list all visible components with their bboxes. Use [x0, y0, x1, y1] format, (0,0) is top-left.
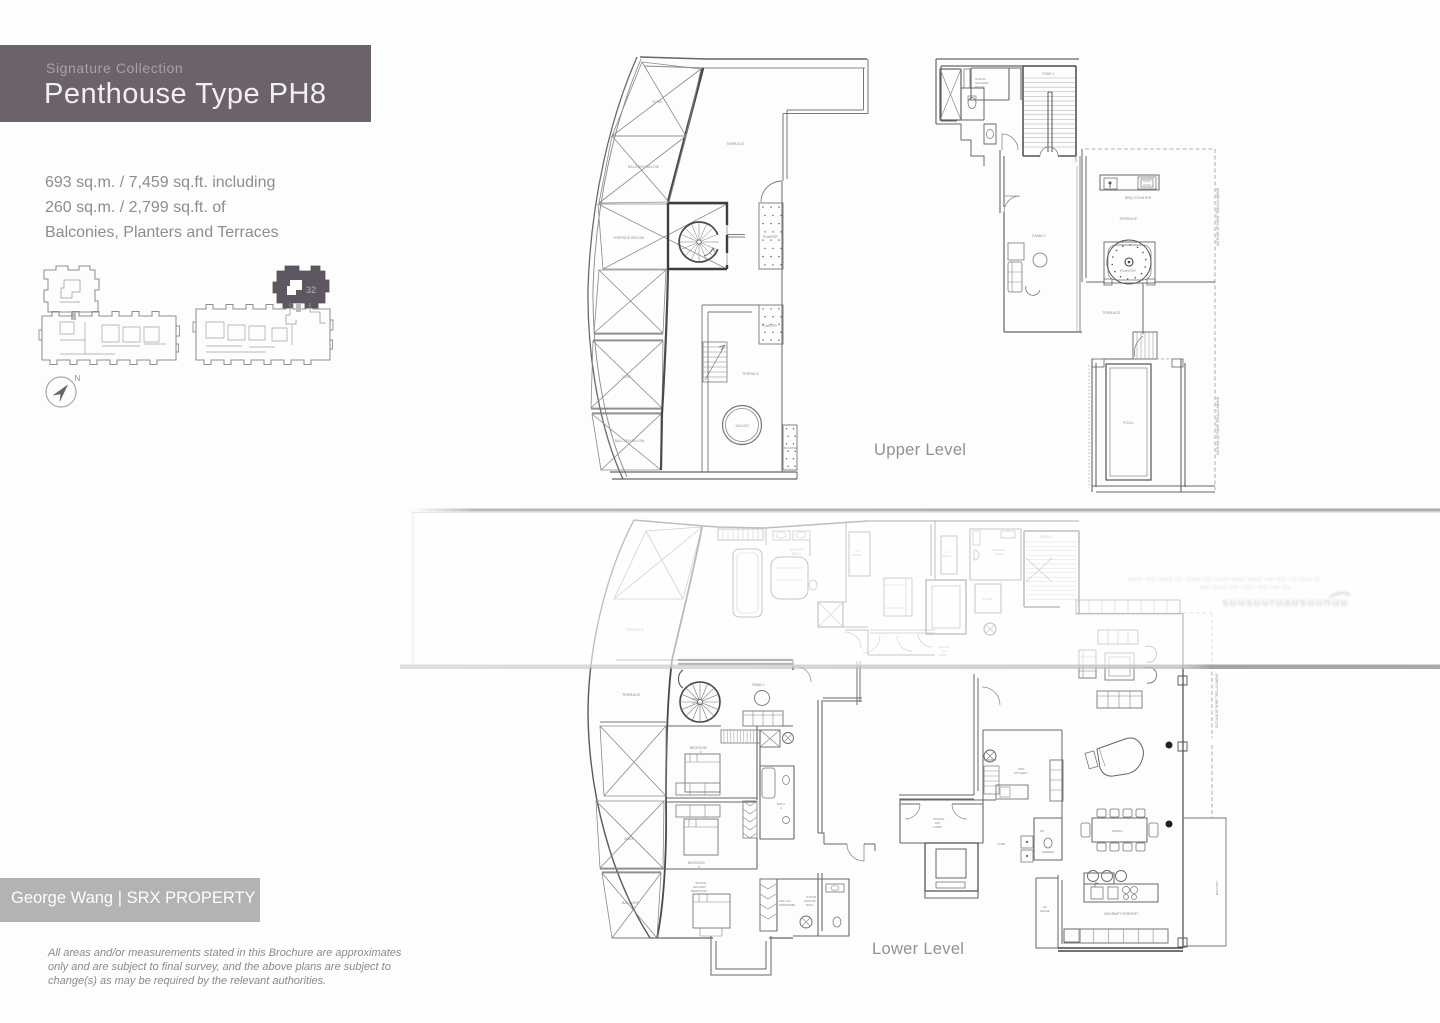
svg-text:STAIR: STAIR [692, 701, 701, 705]
svg-text:PLANTER: PLANTER [762, 324, 777, 328]
svg-text:TERRACE: TERRACE [726, 142, 745, 146]
svg-text:OUTLINE OF ROOF TRELLIS ABOVE: OUTLINE OF ROOF TRELLIS ABOVE [1215, 673, 1219, 728]
svg-text:LOBBY: LOBBY [933, 825, 942, 829]
svg-text:BEDROOM: BEDROOM [690, 746, 707, 750]
svg-text:BALCONY: BALCONY [622, 901, 640, 905]
svg-text:32: 32 [306, 285, 316, 295]
svg-text:YARD: YARD [997, 842, 1006, 846]
svg-text:FAMILY: FAMILY [1032, 233, 1046, 238]
svg-text:DINING: DINING [1112, 829, 1123, 833]
svg-text:KITCHEN: KITCHEN [1014, 771, 1027, 775]
svg-text:JACUZZI: JACUZZI [735, 424, 749, 428]
svg-text:PLANTER: PLANTER [763, 235, 778, 239]
svg-text:um muu nm umu nm um nu: um muu nm umu nm um nu [1200, 585, 1291, 591]
svg-text:Lower Level: Lower Level [872, 940, 964, 958]
svg-text:TERRACE: TERRACE [1119, 217, 1138, 221]
svg-text:GOURMET SERVERY: GOURMET SERVERY [1104, 912, 1139, 916]
svg-text:WC: WC [1040, 829, 1045, 833]
svg-text:TERRACE: TERRACE [1102, 311, 1121, 315]
svg-text:FAMILY: FAMILY [752, 683, 765, 687]
svg-text:TERRACE: TERRACE [742, 372, 760, 376]
svg-text:mum nm mnu un umm nu uum muu u: mum nm mnu un umm nu uum muu umu um mu u… [1128, 577, 1321, 583]
svg-text:VOID: VOID [622, 375, 631, 379]
svg-text:OUTLINE OF ROOF TRELLIS ABOVE: OUTLINE OF ROOF TRELLIS ABOVE [1216, 187, 1220, 246]
svg-text:WARDROBE: WARDROBE [779, 903, 796, 907]
svg-text:PLANTER: PLANTER [1120, 269, 1136, 273]
svg-text:BATH: BATH [806, 903, 813, 907]
svg-text:TERRACE: TERRACE [622, 693, 641, 697]
svg-text:TERRACE BELOW: TERRACE BELOW [613, 236, 645, 240]
svg-text:Upper Level: Upper Level [874, 441, 966, 459]
svg-text:5: 5 [700, 750, 702, 754]
svg-text:suusuuruausuunuu: suusuuruausuunuu [1222, 597, 1349, 609]
svg-text:STAIR 1: STAIR 1 [1042, 72, 1055, 76]
svg-text:VOID: VOID [624, 837, 633, 841]
svg-text:VOID: VOID [652, 99, 662, 104]
svg-text:LEDGE: LEDGE [1040, 909, 1050, 913]
svg-text:BBQ COUNTER: BBQ COUNTER [1125, 196, 1152, 200]
svg-text:4: 4 [698, 865, 700, 869]
svg-text:4: 4 [780, 806, 782, 810]
svg-text:BALCONY BELOW: BALCONY BELOW [628, 165, 660, 169]
svg-text:BEDROOM: BEDROOM [691, 889, 707, 893]
svg-text:BALCONY BELOW: BALCONY BELOW [615, 439, 645, 443]
svg-text:BALCONY: BALCONY [1215, 881, 1219, 895]
svg-text:PLANTER: PLANTER [784, 446, 799, 450]
svg-text:BEDROOM: BEDROOM [688, 861, 705, 865]
svg-text:OUTLINE OF ROOF TRELLIS ABOVE: OUTLINE OF ROOF TRELLIS ABOVE [1216, 396, 1220, 455]
svg-text:POOL: POOL [1123, 421, 1134, 425]
svg-text:N: N [75, 374, 81, 383]
